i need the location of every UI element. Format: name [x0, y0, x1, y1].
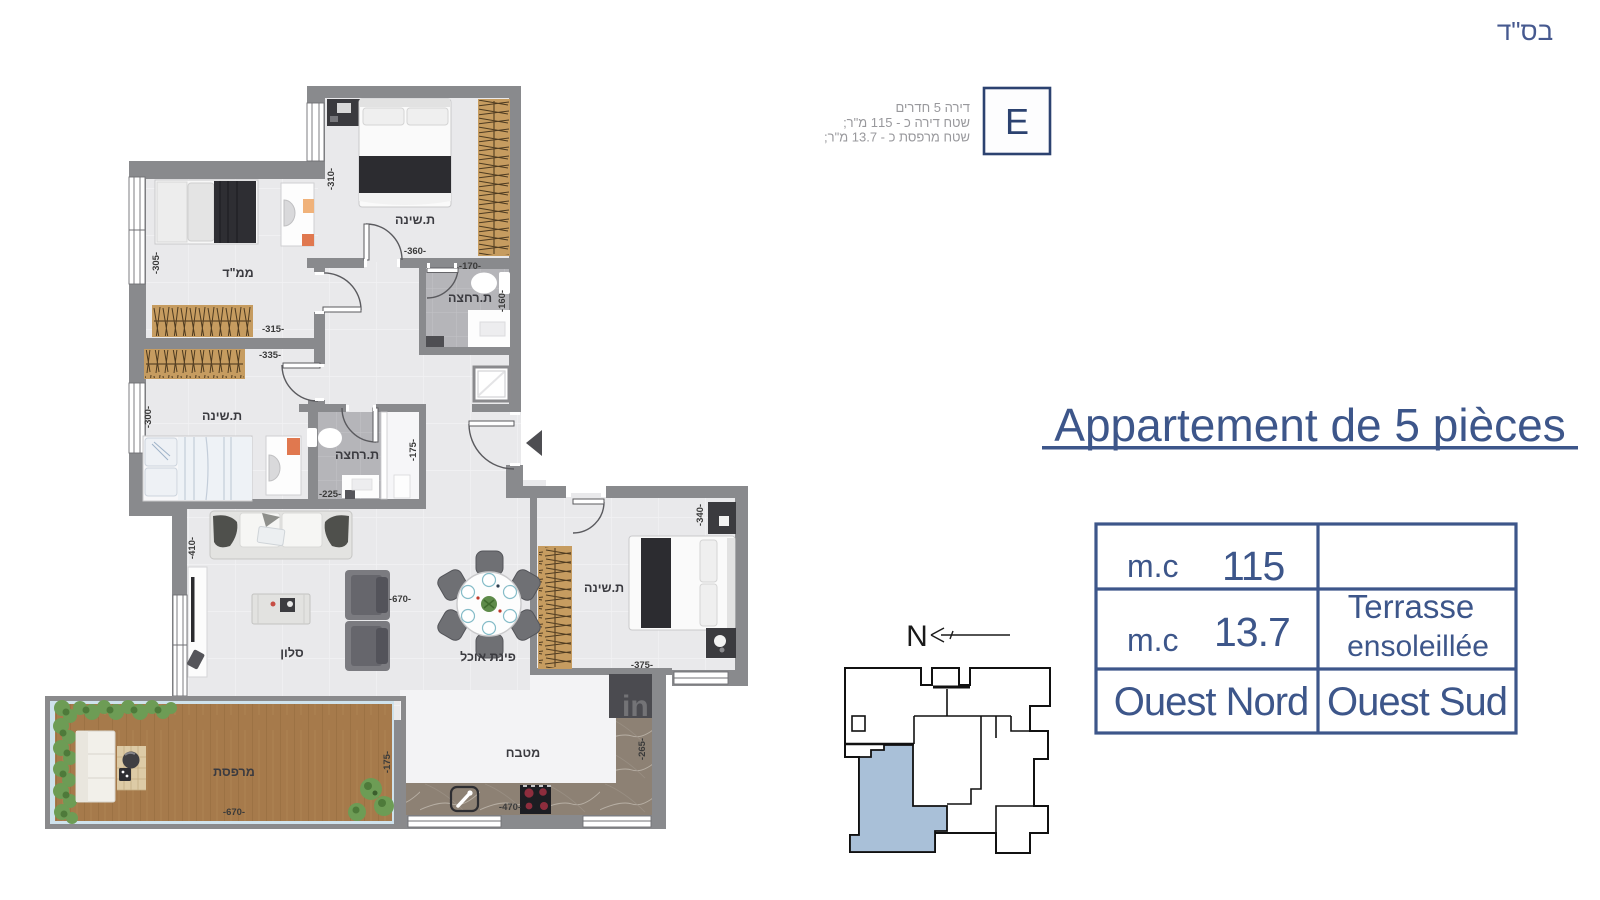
svg-text:13.7: 13.7 [1214, 609, 1290, 655]
svg-text:Appartement de 5 pièces: Appartement de 5 pièces [1054, 399, 1565, 451]
svg-text:-160-: -160- [497, 290, 508, 312]
svg-text:E: E [1005, 101, 1029, 142]
svg-text:115: 115 [1222, 543, 1285, 589]
svg-text:ת.רחצה: ת.רחצה [448, 291, 492, 305]
svg-text:-470-: -470- [499, 802, 521, 813]
svg-text:-335-: -335- [259, 350, 281, 361]
svg-text:-360-: -360- [404, 246, 426, 257]
svg-text:בס"ד: בס"ד [1497, 16, 1553, 46]
svg-text:-670-: -670- [223, 807, 245, 818]
svg-text:-265-: -265- [637, 738, 648, 760]
svg-text:-340-: -340- [695, 504, 706, 526]
svg-text:-175-: -175- [382, 751, 393, 773]
svg-text:-225-: -225- [319, 489, 341, 500]
svg-text:Terrasse: Terrasse [1348, 588, 1475, 625]
svg-text:סלון: סלון [280, 646, 304, 660]
svg-text:-670-: -670- [389, 594, 411, 605]
svg-text:-410-: -410- [187, 537, 198, 559]
svg-text:-305-: -305- [151, 252, 162, 274]
svg-text:מרפסת: מרפסת [213, 765, 255, 779]
svg-text:Ouest Sud: Ouest Sud [1327, 680, 1507, 724]
svg-text:ממ"ד: ממ"ד [222, 266, 253, 280]
svg-text:-375-: -375- [631, 660, 653, 671]
svg-text:מטבח: מטבח [506, 746, 540, 760]
svg-text:-315-: -315- [262, 324, 284, 335]
svg-text:-300-: -300- [143, 406, 154, 428]
svg-text:-175-: -175- [408, 439, 419, 461]
svg-text:ת.שינה: ת.שינה [584, 581, 624, 595]
svg-text:פינת אוכל: פינת אוכל [460, 650, 516, 664]
svg-text:ensoleillée: ensoleillée [1347, 630, 1489, 663]
svg-text:ת.שינה: ת.שינה [202, 409, 242, 423]
svg-text:m.c: m.c [1127, 548, 1179, 584]
svg-text:-310-: -310- [326, 168, 337, 190]
svg-text:שטח מרפסת כ - 13.7 מ"ר;: שטח מרפסת כ - 13.7 מ"ר; [824, 130, 970, 145]
svg-text:N: N [906, 620, 928, 653]
svg-text:Ouest Nord: Ouest Nord [1114, 680, 1309, 724]
svg-text:דירה 5 חדרים: דירה 5 חדרים [896, 100, 971, 115]
svg-text:ת.רחצה: ת.רחצה [335, 448, 379, 462]
svg-text:ת.שינה: ת.שינה [395, 213, 435, 227]
svg-text:שטח דירה כ - 115 מ"ר;: שטח דירה כ - 115 מ"ר; [843, 115, 970, 130]
svg-text:m.c: m.c [1127, 622, 1179, 658]
svg-text:-170-: -170- [459, 261, 481, 272]
